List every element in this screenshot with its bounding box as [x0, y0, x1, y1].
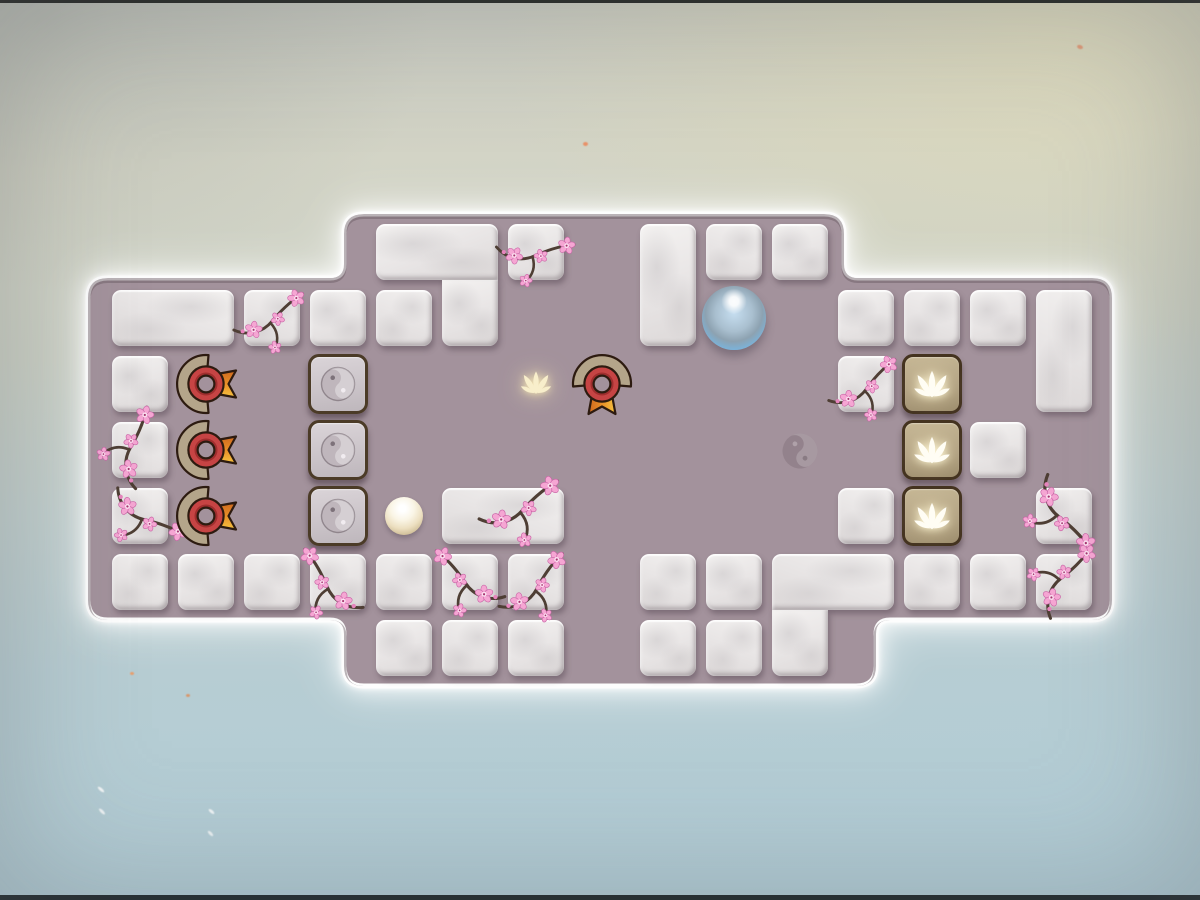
marble-tile [970, 554, 1026, 610]
marble-tile [376, 290, 432, 346]
marble-tile [1036, 488, 1092, 544]
marble-tile [706, 224, 762, 280]
marble-tile [772, 610, 828, 676]
yinyang-emblem [319, 497, 357, 535]
marble-tile [838, 290, 894, 346]
marble-tile [376, 620, 432, 676]
medal-gate [568, 350, 636, 418]
marble-tile [508, 620, 564, 676]
marble-tile [442, 280, 498, 346]
yinyang-icon [780, 431, 820, 471]
marble-tile [244, 554, 300, 610]
marble-tile [706, 620, 762, 676]
screen-top-edge [0, 0, 1200, 3]
marble-tile [112, 488, 168, 544]
marble-tile [310, 554, 366, 610]
medal-gate [172, 350, 240, 418]
marble-tile [112, 290, 234, 346]
yinyang-tile [308, 486, 368, 546]
marble-tile [904, 554, 960, 610]
marble-tile [310, 290, 366, 346]
marble-tile [970, 422, 1026, 478]
marble-tile [640, 620, 696, 676]
marble-tile [640, 554, 696, 610]
marble-tile [772, 554, 894, 610]
marble-tile [112, 422, 168, 478]
lotus-spark-icon [519, 369, 553, 402]
marble-tile [1036, 554, 1092, 610]
medal-gate [172, 416, 240, 484]
lotus-goal-tile [902, 354, 962, 414]
marble-tile [178, 554, 234, 610]
blue-ball[interactable] [702, 286, 766, 350]
pearl-ball[interactable] [385, 497, 423, 535]
marble-tile [112, 356, 168, 412]
yinyang-floor-decal [780, 431, 820, 476]
marble-tile [706, 554, 762, 610]
screen-bottom-edge [0, 895, 1200, 900]
marble-tile [442, 620, 498, 676]
yinyang-tile [308, 354, 368, 414]
marble-tile [838, 488, 894, 544]
marble-tile [904, 290, 960, 346]
marble-tile [640, 224, 696, 346]
yinyang-emblem [319, 365, 357, 403]
marble-tile [772, 224, 828, 280]
board-pieces-layer [0, 0, 1200, 900]
marble-tile [508, 554, 564, 610]
marble-tile [508, 224, 564, 280]
marble-tile [376, 224, 498, 280]
marble-tile [112, 554, 168, 610]
marble-tile [838, 356, 894, 412]
marble-tile [970, 290, 1026, 346]
yinyang-emblem [319, 431, 357, 469]
lotus-goal-tile [902, 420, 962, 480]
marble-tile [376, 554, 432, 610]
game-screen [0, 0, 1200, 900]
marble-tile [1036, 290, 1092, 412]
marble-tile [442, 554, 498, 610]
marble-tile [244, 290, 300, 346]
marble-tile [442, 488, 564, 544]
lotus-goal-tile [902, 486, 962, 546]
yinyang-tile [308, 420, 368, 480]
medal-gate [172, 482, 240, 550]
